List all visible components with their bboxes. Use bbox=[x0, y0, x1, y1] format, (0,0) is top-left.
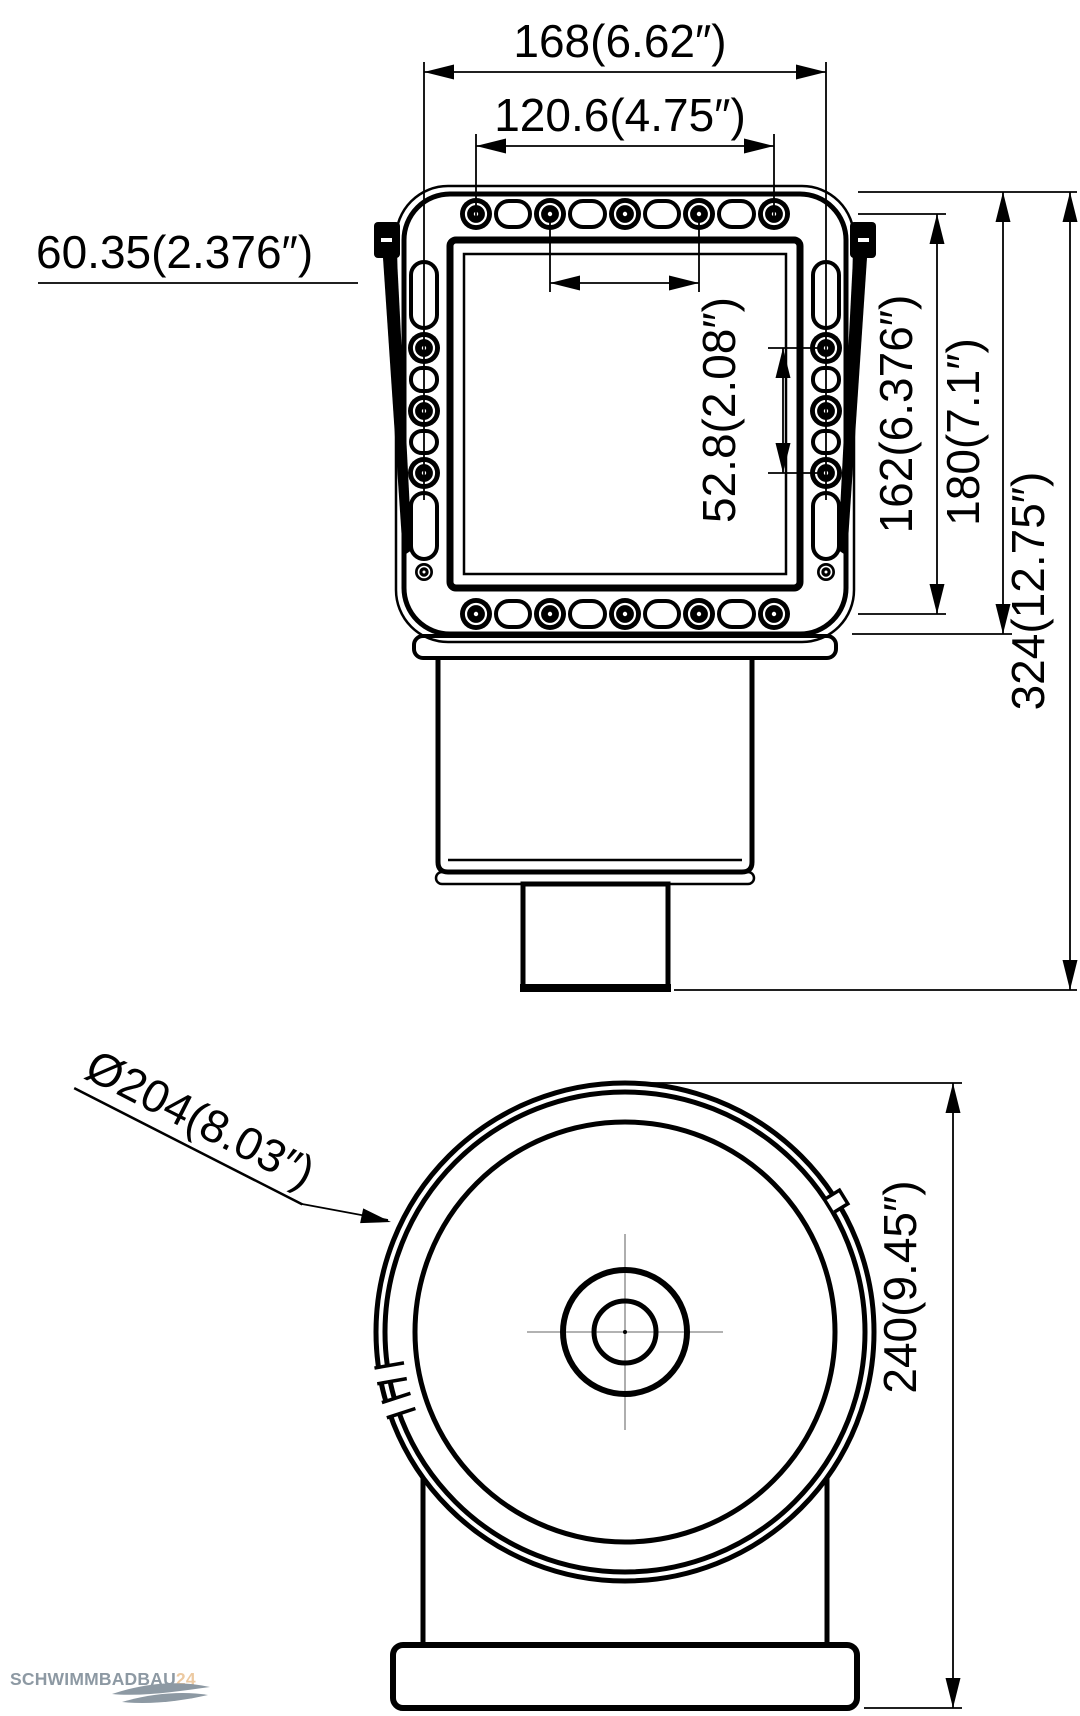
outlet-pipe bbox=[523, 884, 668, 988]
technical-drawing-page: 168(6.62″) 120.6(4.75″) 60.35(2.376″) bbox=[0, 0, 1080, 1716]
skimmer-technical-drawing: 168(6.62″) 120.6(4.75″) 60.35(2.376″) bbox=[0, 0, 1080, 1716]
dimension-lid-diameter: Ø204(8.03″) bbox=[74, 1038, 392, 1229]
front-view bbox=[374, 186, 876, 988]
lid-view bbox=[374, 1083, 874, 1708]
lid-notch-left-upper bbox=[374, 1363, 406, 1384]
skimmer-body bbox=[436, 658, 754, 988]
dimension-label-lid-diameter: Ø204(8.03″) bbox=[78, 1039, 323, 1198]
dimension-label-side-hole-pitch: 52.8(2.08″) bbox=[693, 297, 745, 523]
dimension-label-lid-overall-height: 240(9.45″) bbox=[874, 1180, 926, 1393]
screw-slots bbox=[411, 201, 839, 627]
watermark: SCHWIMMBADBAU24 bbox=[10, 1669, 210, 1703]
lid-center-knob bbox=[527, 1234, 723, 1430]
faceplate bbox=[374, 186, 876, 658]
dimension-top-hole-pitch: 60.35(2.376″) bbox=[36, 222, 699, 292]
faceplate-band bbox=[404, 194, 846, 634]
dimension-label-top-hole-pitch: 60.35(2.376″) bbox=[36, 226, 313, 278]
dimension-label-mount-width: 168(6.62″) bbox=[513, 15, 726, 67]
faceplate-flange-lip bbox=[414, 636, 836, 658]
lid-base-flange bbox=[393, 1645, 857, 1708]
faceplate-screws bbox=[408, 198, 842, 630]
front-view-dimensions: 168(6.62″) 120.6(4.75″) 60.35(2.376″) bbox=[36, 15, 1078, 990]
dimension-mount-height: 162(6.376″) bbox=[858, 214, 946, 614]
dimension-lid-overall-height: 240(9.45″) bbox=[644, 1083, 962, 1708]
dimension-mount-width: 168(6.62″) bbox=[424, 15, 826, 500]
dimension-label-mount-height: 162(6.376″) bbox=[870, 295, 922, 534]
dimension-label-overall-height: 324(12.75″) bbox=[1002, 472, 1054, 711]
dimension-label-faceplate-height: 180(7.1″) bbox=[937, 338, 989, 526]
dimension-label-top-hole-span: 120.6(4.75″) bbox=[494, 89, 746, 141]
faceplate-opening bbox=[450, 240, 800, 588]
body-outline bbox=[438, 658, 752, 872]
